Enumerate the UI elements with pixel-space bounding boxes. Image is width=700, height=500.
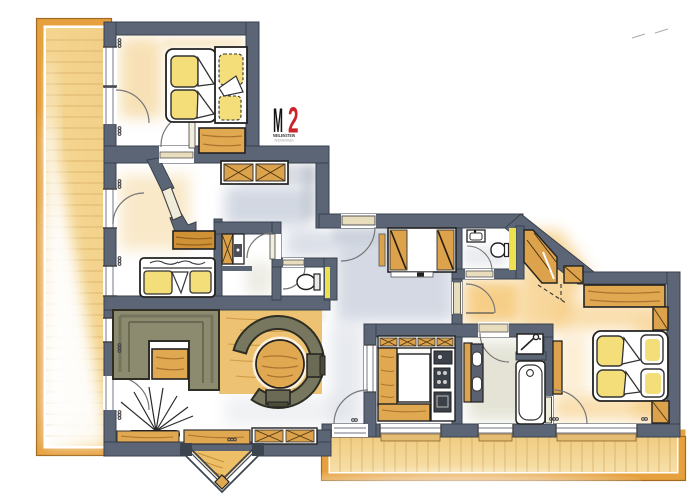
- svg-text:MEILENSTEIN: MEILENSTEIN: [273, 133, 295, 138]
- svg-text:ZEICHNUNGEN: ZEICHNUNGEN: [275, 139, 294, 143]
